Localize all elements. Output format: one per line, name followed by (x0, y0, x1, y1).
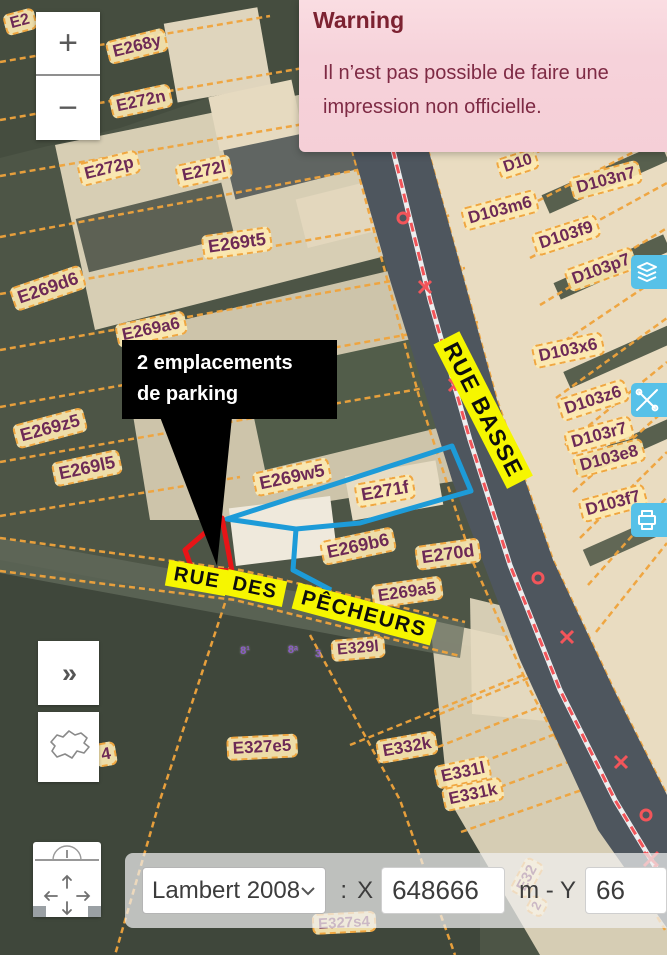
coordinate-bar: Lambert 2008 : X m - Y (125, 853, 667, 928)
map-application: E2E268yE272nE272pE272lE269t5E269d6E269a6… (0, 0, 667, 955)
zoom-control: + − (36, 12, 100, 140)
tools-icon (635, 388, 659, 412)
pan-left-icon[interactable] (45, 892, 57, 900)
warning-message: Il n’est pas possible de faire une impre… (299, 34, 663, 124)
pan-right-icon[interactable] (77, 892, 89, 900)
callout-line2: de parking (137, 379, 337, 410)
layers-icon (635, 260, 659, 284)
layers-button[interactable] (631, 255, 667, 289)
expand-sidebar-button[interactable]: » (38, 641, 99, 705)
projection-value: Lambert 2008 (152, 877, 300, 905)
tools-button[interactable] (631, 383, 667, 417)
pan-control[interactable] (33, 842, 101, 917)
zoom-in-button[interactable]: + (36, 12, 100, 76)
pan-down-icon[interactable] (63, 902, 71, 914)
callout-box: 2 emplacements de parking (122, 340, 337, 419)
pan-up-icon[interactable] (63, 876, 71, 888)
pan-corner-left (33, 906, 46, 917)
wallonia-button[interactable] (38, 712, 99, 782)
x-coordinate-input[interactable] (381, 867, 505, 914)
y-coordinate-input[interactable] (585, 867, 667, 914)
print-button[interactable] (631, 503, 667, 537)
projection-select[interactable]: Lambert 2008 (142, 867, 326, 914)
x-label: X (357, 877, 373, 905)
wallonia-icon (44, 725, 94, 767)
zoom-out-button[interactable]: − (36, 76, 100, 140)
callout-line1: 2 emplacements (137, 348, 337, 379)
printer-icon (635, 508, 659, 532)
warning-panel: Warning Il n’est pas possible de faire u… (299, 0, 667, 152)
warning-title: Warning (299, 0, 667, 34)
chevron-down-icon (300, 886, 316, 896)
pan-corner-right (88, 906, 101, 917)
unit-y-label: m - Y (519, 877, 576, 905)
colon-separator: : (340, 877, 347, 905)
double-chevron-icon: » (62, 658, 75, 688)
